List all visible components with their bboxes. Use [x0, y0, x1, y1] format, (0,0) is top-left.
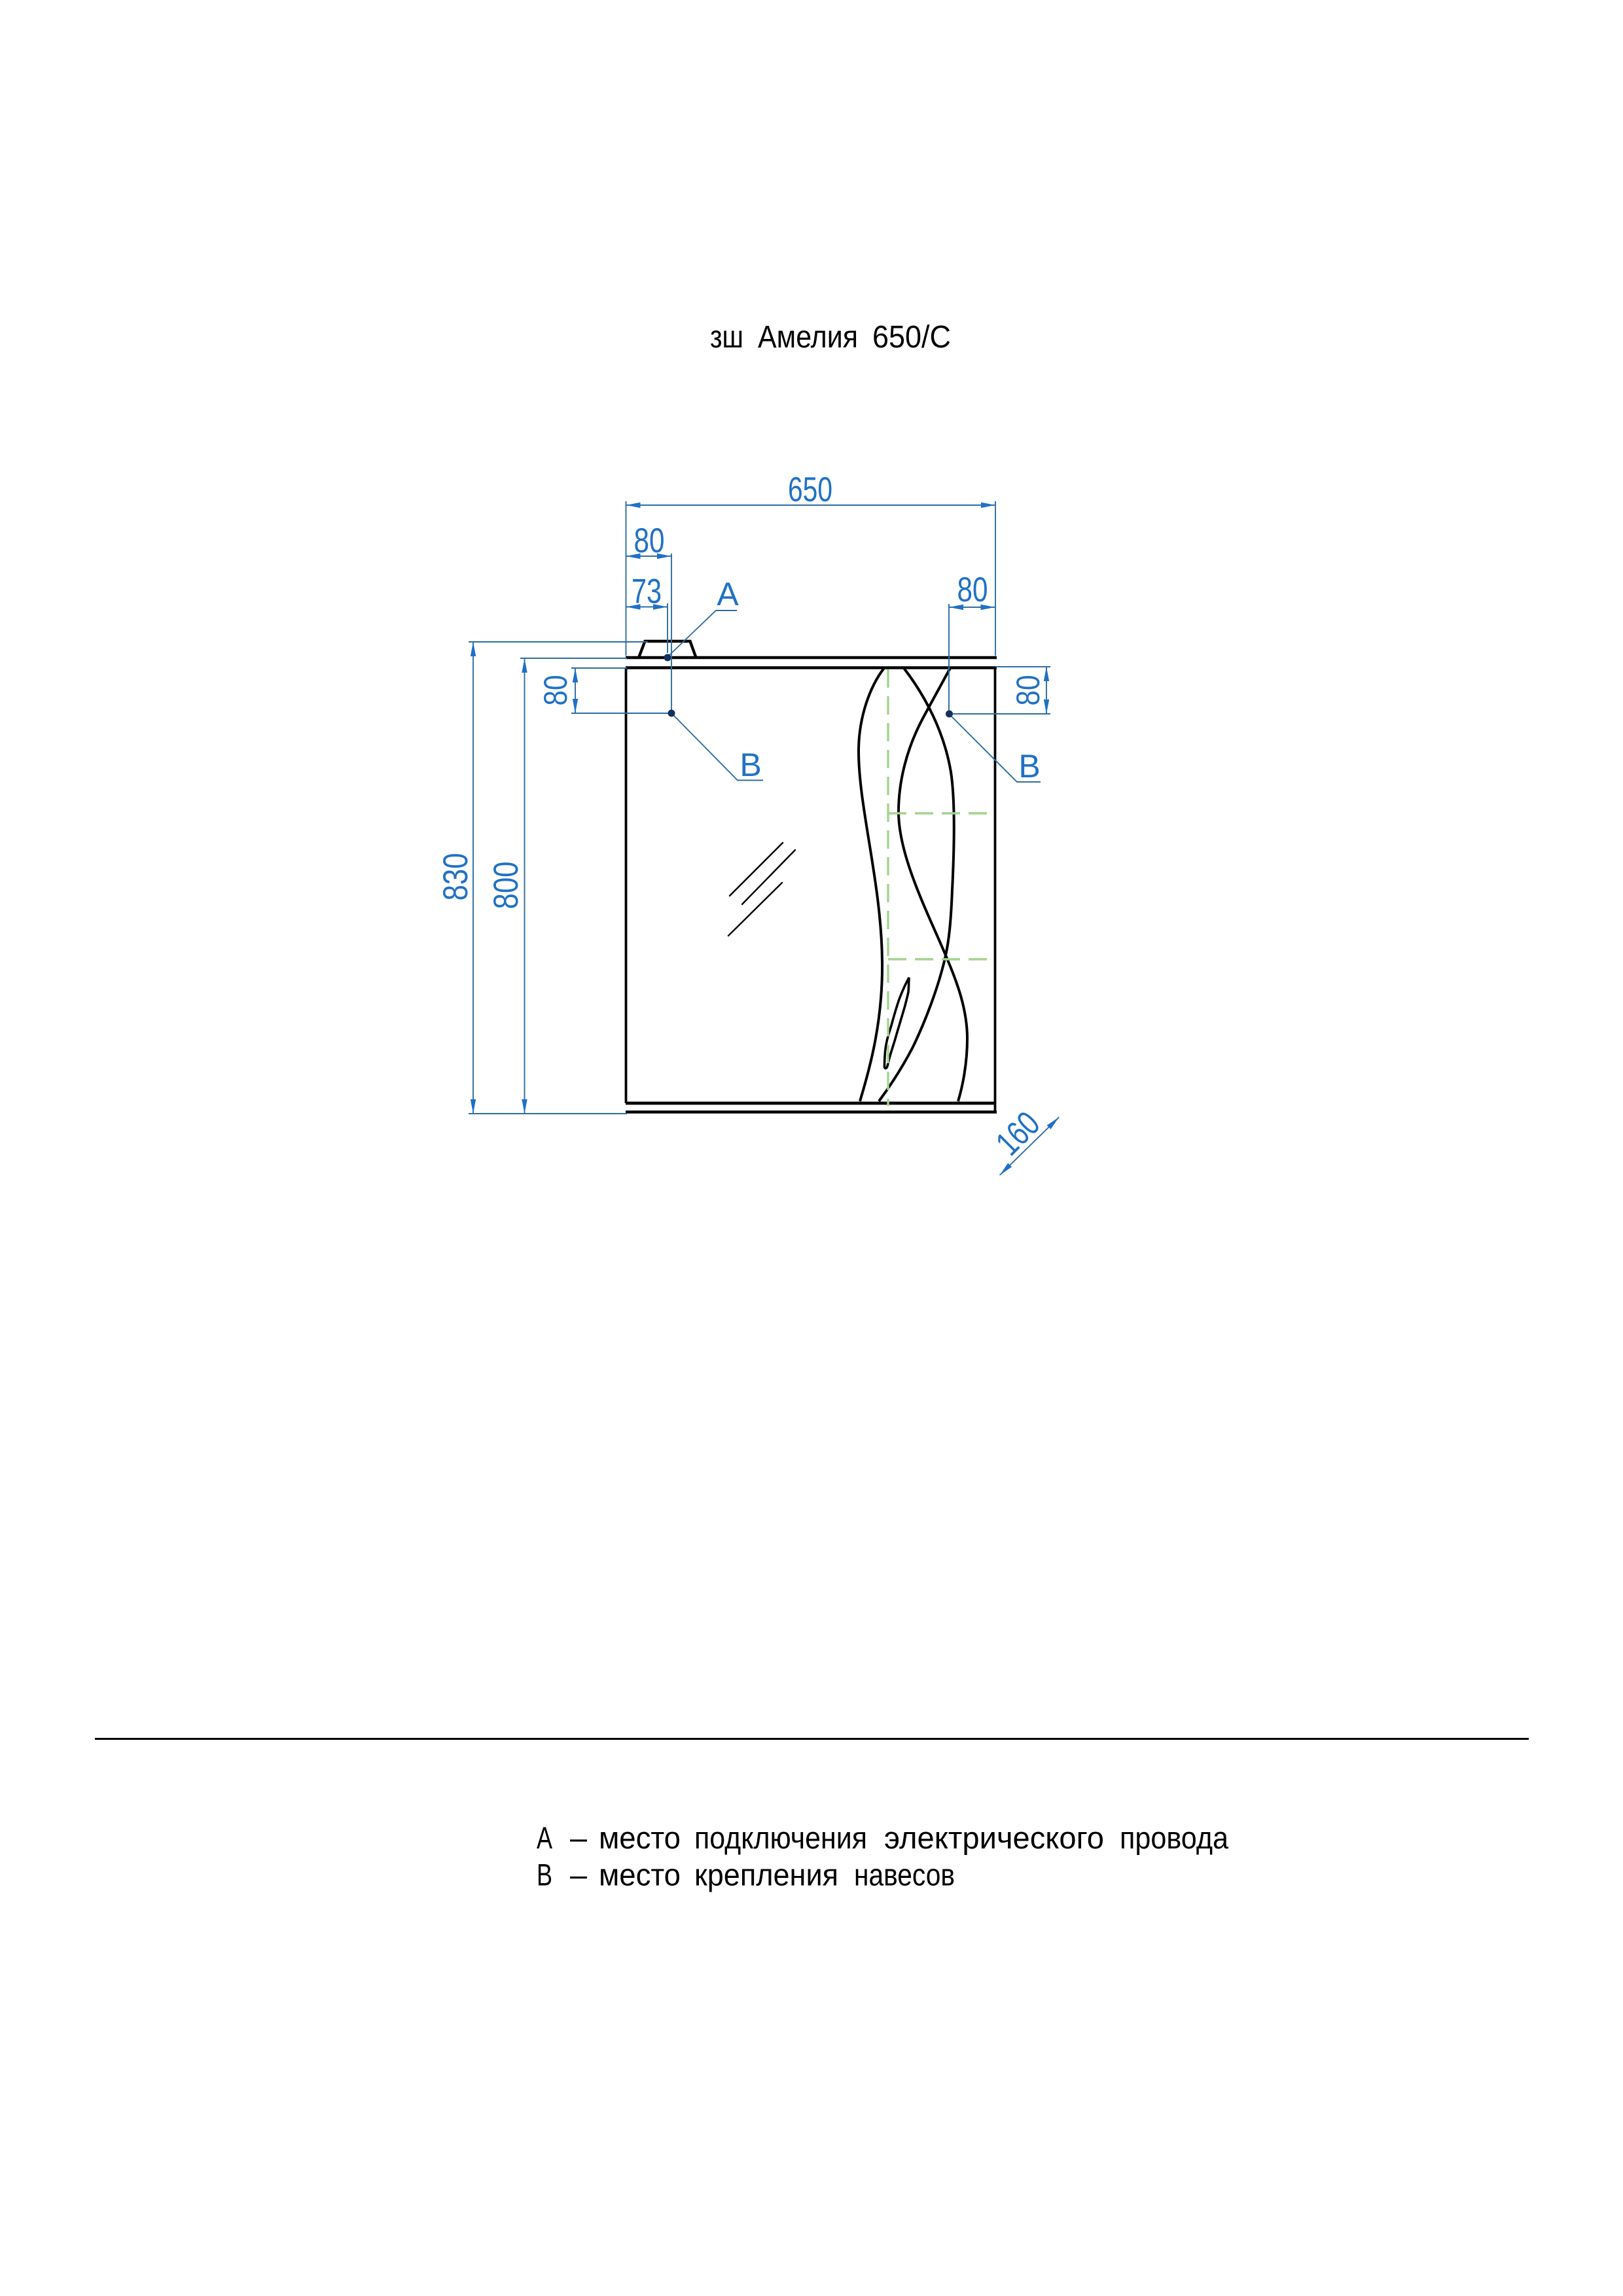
svg-text:провода: провода [1120, 1820, 1229, 1855]
svg-text:80: 80 [957, 571, 988, 609]
svg-text:крепления: крепления [694, 1858, 838, 1892]
svg-text:650: 650 [788, 470, 832, 509]
svg-text:73: 73 [632, 573, 662, 611]
svg-text:место: место [599, 1858, 681, 1892]
svg-text:подключения: подключения [694, 1820, 867, 1855]
svg-text:зш: зш [710, 320, 743, 355]
svg-text:800: 800 [487, 862, 526, 910]
svg-text:–: – [570, 1858, 588, 1892]
svg-text:электрического: электрического [884, 1820, 1104, 1855]
svg-text:80: 80 [634, 521, 665, 560]
svg-text:650/С: 650/С [872, 320, 951, 355]
svg-text:80: 80 [537, 675, 574, 706]
svg-text:место: место [599, 1820, 681, 1855]
svg-text:B: B [740, 747, 761, 783]
svg-text:навесов: навесов [854, 1858, 955, 1892]
svg-text:830: 830 [437, 853, 475, 901]
svg-text:–: – [570, 1820, 588, 1855]
svg-text:A: A [717, 576, 739, 612]
svg-text:А: А [537, 1820, 552, 1855]
svg-text:B: B [1018, 748, 1040, 785]
svg-text:80: 80 [1010, 675, 1046, 706]
svg-text:В: В [537, 1858, 552, 1892]
svg-text:Амелия: Амелия [758, 320, 858, 355]
